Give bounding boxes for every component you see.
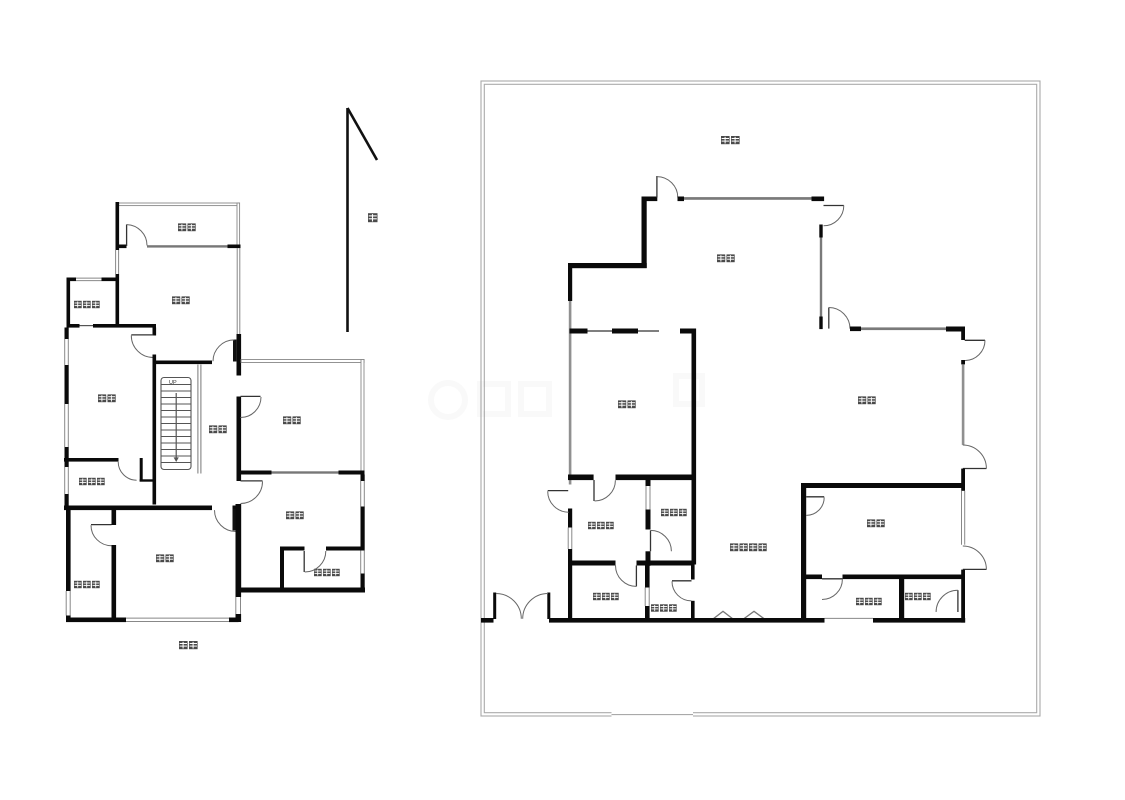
- svg-text:UP: UP: [169, 380, 177, 386]
